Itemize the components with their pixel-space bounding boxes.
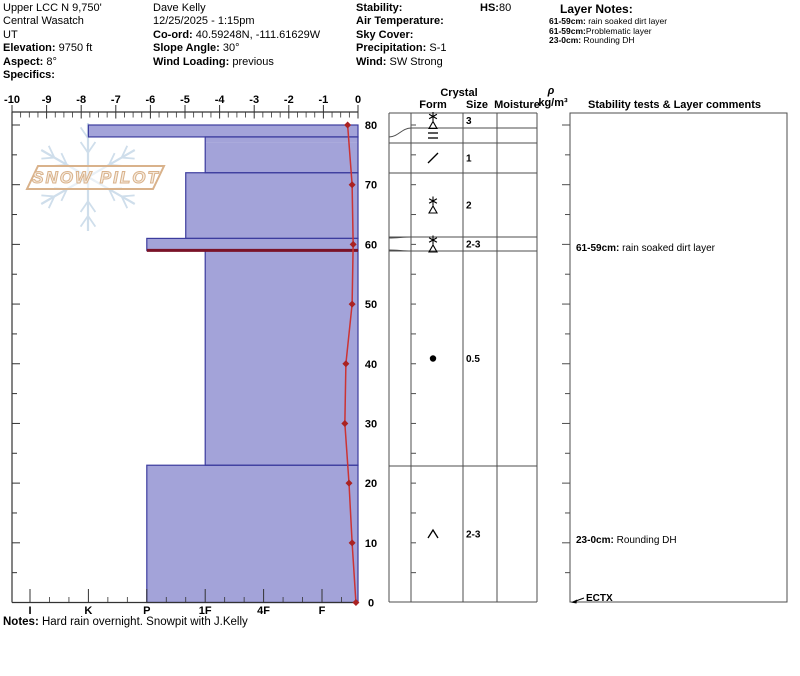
snowflake-icon (88, 201, 95, 212)
grain-size-value: 2-3 (466, 530, 481, 541)
temp-tick-label: -6 (146, 94, 156, 106)
hardness-bar (205, 143, 358, 173)
grain-form-triangle-icon (429, 206, 437, 213)
snowpilot-profile-page: Upper LCC N 9,750' Central Wasatch UT El… (0, 0, 800, 676)
temp-tick-label: -1 (319, 94, 329, 106)
temp-tick-label: -7 (111, 94, 121, 106)
snowflake-icon (41, 195, 54, 196)
snowflake-icon (122, 158, 135, 159)
snowflake-icon (41, 158, 54, 159)
stability-test-result: ECTX (586, 593, 613, 604)
grain-form-depth-hoar-icon (428, 530, 438, 538)
table-header-form: Form (419, 99, 447, 111)
row-connector (389, 128, 411, 137)
grain-size-value: 3 (466, 116, 472, 127)
depth-label: 80 (365, 120, 377, 132)
snow-profile-chart: SNOW PILOT-10-9-8-7-6-5-4-3-2-1001020304… (0, 0, 800, 676)
hardness-bar (88, 125, 358, 137)
hardness-tick-label: F (319, 605, 326, 617)
snowflake-icon (81, 127, 88, 138)
snowpilot-logo-text: SNOW PILOT (32, 168, 160, 187)
depth-label: 10 (365, 538, 377, 550)
snowflake-icon (81, 216, 88, 227)
table-header-comments: Stability tests & Layer comments (588, 99, 761, 111)
table-header-crystal: Crystal (440, 87, 477, 99)
grain-size-value: 2-3 (466, 240, 481, 251)
temp-tick-label: -3 (249, 94, 259, 106)
temp-tick-label: -8 (76, 94, 86, 106)
temp-tick-label: -5 (180, 94, 190, 106)
hardness-bar (186, 173, 358, 239)
temp-tick-label: 0 (355, 94, 361, 106)
depth-label: 60 (365, 239, 377, 251)
grain-size-value: 0.5 (466, 354, 480, 365)
grain-form-decomposing-icon (428, 153, 438, 163)
notes-label: Notes: (3, 616, 39, 628)
grain-form-triangle-icon (429, 122, 437, 129)
table-header-density-rho: ρ (547, 85, 555, 97)
table-header-density-unit: kg/m³ (538, 97, 568, 109)
depth-label: 70 (365, 180, 377, 192)
depth-label: 20 (365, 478, 377, 490)
snowflake-icon (88, 216, 95, 227)
depth-label: 30 (365, 418, 377, 430)
snowflake-icon (88, 142, 95, 153)
depth-label: 0 (368, 598, 374, 610)
hardness-bar (147, 465, 358, 602)
depth-label: 50 (365, 299, 377, 311)
grain-form-rounded-icon (430, 355, 436, 361)
snowflake-icon (81, 142, 88, 153)
hardness-tick-label: 4F (257, 605, 270, 617)
temp-tick-label: -4 (215, 94, 226, 106)
hardness-bar (205, 137, 358, 143)
layer-comment: 23-0cm: Rounding DH (576, 535, 677, 546)
grain-size-value: 2 (466, 201, 472, 212)
snowflake-icon (122, 195, 135, 196)
layer-comment: 61-59cm: rain soaked dirt layer (576, 243, 716, 254)
comments-box (570, 113, 787, 602)
notes-text: Hard rain overnight. Snowpit with J.Kell… (39, 616, 248, 628)
table-header-moisture: Moisture (494, 99, 540, 111)
depth-label: 40 (365, 359, 377, 371)
table-header-size: Size (466, 99, 488, 111)
hardness-bar (205, 250, 358, 465)
grain-size-value: 1 (466, 154, 472, 165)
snowflake-icon (81, 201, 88, 212)
temp-tick-label: -2 (284, 94, 294, 106)
temp-tick-label: -9 (42, 94, 52, 106)
pit-notes-row: Notes: Hard rain overnight. Snowpit with… (3, 616, 248, 628)
hardness-bar (147, 238, 358, 250)
temp-tick-label: -10 (4, 94, 20, 106)
